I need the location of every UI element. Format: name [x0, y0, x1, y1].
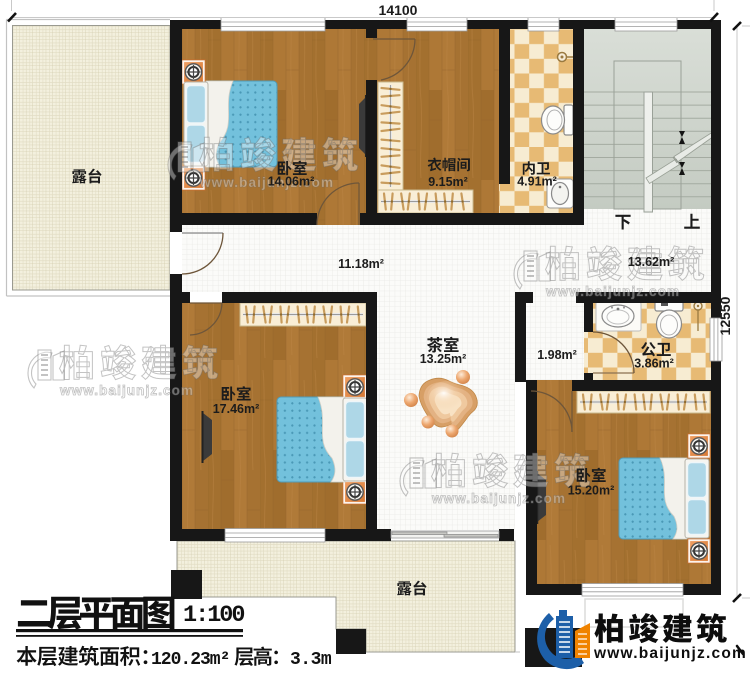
svg-text:1:100: 1:100 — [183, 602, 244, 629]
svg-text:17.46m²: 17.46m² — [213, 402, 260, 416]
svg-text:120.23m²: 120.23m² — [151, 650, 229, 670]
svg-text:3.3m: 3.3m — [290, 650, 332, 670]
svg-text:14100: 14100 — [379, 2, 418, 18]
svg-text:15.20m²: 15.20m² — [568, 484, 615, 498]
svg-text:4.91m²: 4.91m² — [517, 175, 557, 189]
svg-text:12550: 12550 — [717, 296, 733, 335]
svg-text:13.62m²: 13.62m² — [628, 255, 675, 269]
svg-text:14.06m²: 14.06m² — [268, 175, 315, 189]
svg-text:13.25m²: 13.25m² — [420, 352, 467, 366]
svg-text:3.86m²: 3.86m² — [634, 357, 674, 371]
svg-text:11.18m²: 11.18m² — [338, 257, 384, 271]
svg-text:1.98m²: 1.98m² — [537, 348, 577, 362]
svg-text:9.15m²: 9.15m² — [428, 175, 468, 189]
svg-text:www.baijunjz.com: www.baijunjz.com — [593, 645, 747, 662]
